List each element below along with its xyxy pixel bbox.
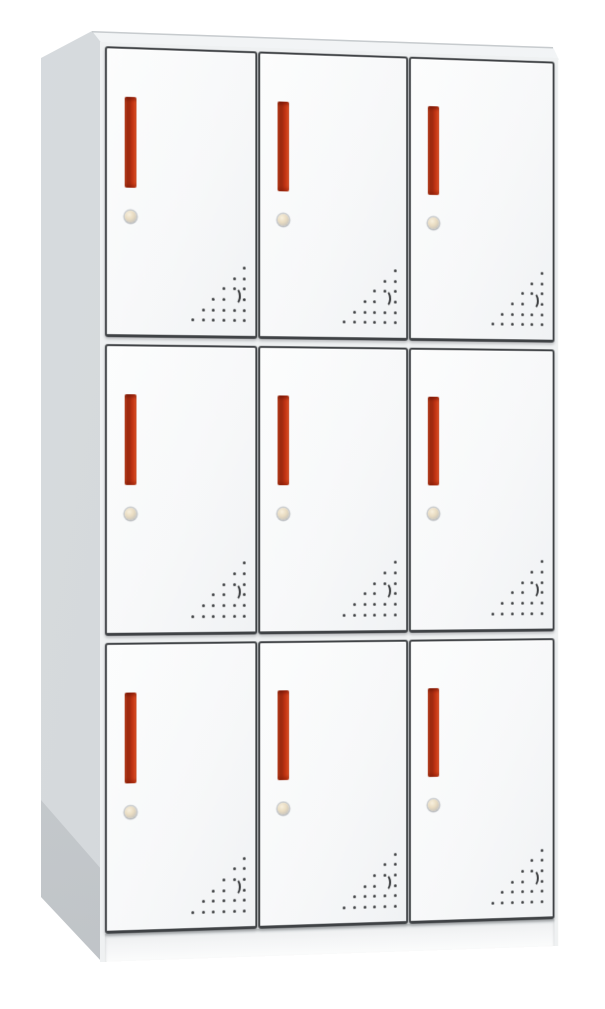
vent-empty-cell <box>488 857 498 868</box>
vent-hole <box>527 278 537 288</box>
vent-crescent-hole <box>229 885 239 896</box>
vent-hole <box>527 897 537 908</box>
vent-empty-cell <box>229 853 239 864</box>
locker-product-photo <box>0 0 605 1009</box>
vent-empty-cell <box>517 268 527 278</box>
vent-empty-cell <box>198 886 208 897</box>
vent-empty-cell <box>360 850 370 861</box>
vent-holes-icon <box>339 849 400 913</box>
keyhole-lock-icon[interactable] <box>278 802 290 814</box>
vent-hole <box>240 864 250 875</box>
vent-empty-cell <box>508 557 518 567</box>
vent-empty-cell <box>350 578 360 589</box>
vent-hole <box>240 590 250 601</box>
vent-empty-cell <box>508 268 518 279</box>
vent-empty-cell <box>188 569 198 580</box>
vent-hole <box>209 886 219 897</box>
vent-empty-cell <box>360 286 370 297</box>
locker-door[interactable] <box>409 348 555 633</box>
vent-empty-cell <box>219 558 229 569</box>
vent-hole <box>188 611 198 622</box>
vent-hole <box>527 320 537 330</box>
vent-empty-cell <box>350 871 360 882</box>
vent-hole <box>209 315 219 326</box>
vent-crescent-hole <box>229 590 239 601</box>
vent-hole <box>537 268 547 278</box>
vent-empty-cell <box>219 854 229 865</box>
vent-hole <box>370 286 380 297</box>
vent-hole <box>537 608 547 618</box>
vent-hole <box>517 299 527 309</box>
vent-hole <box>229 305 239 316</box>
vent-empty-cell <box>339 850 349 861</box>
vent-empty-cell <box>488 598 498 608</box>
vent-empty-cell <box>339 579 349 590</box>
vent-empty-cell <box>488 309 498 320</box>
vent-empty-cell <box>198 262 208 273</box>
locker-door[interactable] <box>259 639 408 928</box>
vent-hole <box>360 881 370 892</box>
vent-hole <box>240 874 250 885</box>
vent-hole <box>508 319 518 329</box>
vent-empty-cell <box>339 882 349 893</box>
vent-hole <box>370 599 380 610</box>
vent-empty-cell <box>339 589 349 600</box>
vent-empty-cell <box>339 307 349 318</box>
vent-empty-cell <box>339 275 349 286</box>
vent-empty-cell <box>209 875 219 886</box>
vent-hole <box>380 610 390 621</box>
locker-door[interactable] <box>105 641 258 934</box>
vent-empty-cell <box>488 288 498 299</box>
vent-hole <box>370 307 380 318</box>
vent-empty-cell <box>209 273 219 284</box>
vent-empty-cell <box>188 876 198 887</box>
keyhole-lock-icon[interactable] <box>125 806 137 818</box>
locker-door[interactable] <box>409 57 555 343</box>
vent-hole <box>370 318 380 329</box>
vent-empty-cell <box>488 557 498 567</box>
vent-hole <box>537 320 547 330</box>
vent-crescent-hole <box>229 294 239 305</box>
vent-empty-cell <box>188 579 198 590</box>
vent-empty-cell <box>339 861 349 872</box>
door-handle-icon[interactable] <box>278 690 290 780</box>
vent-hole <box>498 309 508 319</box>
vent-hole <box>350 610 360 621</box>
vent-empty-cell <box>350 265 360 276</box>
vent-hole <box>229 906 239 917</box>
door-handle-icon[interactable] <box>428 688 439 777</box>
vent-empty-cell <box>498 846 508 857</box>
vent-empty-cell <box>209 569 219 580</box>
vent-hole <box>498 319 508 329</box>
vent-hole <box>350 892 360 903</box>
vent-hole <box>188 907 198 918</box>
vent-empty-cell <box>498 877 508 888</box>
vent-holes-icon <box>188 853 250 918</box>
vent-empty-cell <box>209 864 219 875</box>
vent-hole <box>537 855 547 866</box>
vent-empty-cell <box>360 578 370 589</box>
vent-hole <box>517 887 527 898</box>
vent-empty-cell <box>339 599 349 610</box>
vent-empty-cell <box>488 267 498 278</box>
vent-empty-cell <box>360 568 370 579</box>
vent-empty-cell <box>488 578 498 588</box>
vent-hole <box>488 609 498 619</box>
vent-empty-cell <box>339 558 349 569</box>
vent-hole <box>219 906 229 917</box>
vent-hole <box>370 589 380 600</box>
vent-empty-cell <box>527 557 537 567</box>
vent-empty-cell <box>188 854 198 865</box>
vent-hole <box>390 578 400 588</box>
vent-hole <box>517 309 527 319</box>
vent-hole <box>508 309 518 319</box>
door-handle-icon[interactable] <box>428 397 439 486</box>
vent-empty-cell <box>198 569 208 580</box>
vent-hole <box>390 891 400 902</box>
vent-empty-cell <box>219 864 229 875</box>
vent-empty-cell <box>508 278 518 289</box>
vent-hole <box>370 578 380 589</box>
vent-holes-icon <box>488 557 547 619</box>
vent-hole <box>219 315 229 326</box>
vent-empty-cell <box>350 568 360 579</box>
vent-hole <box>498 609 508 619</box>
vent-hole <box>380 276 390 287</box>
vent-empty-cell <box>198 579 208 590</box>
keyhole-lock-icon[interactable] <box>428 217 439 229</box>
vent-hole <box>390 880 400 891</box>
door-handle-icon[interactable] <box>125 97 137 188</box>
vent-empty-cell <box>488 846 498 857</box>
door-handle-icon[interactable] <box>125 395 137 486</box>
vent-hole <box>209 294 219 305</box>
vent-hole <box>209 907 219 918</box>
door-handle-icon[interactable] <box>278 396 290 486</box>
vent-hole <box>380 568 390 578</box>
vent-empty-cell <box>350 275 360 286</box>
vent-empty-cell <box>188 304 198 315</box>
vent-empty-cell <box>380 557 390 567</box>
vent-hole <box>380 860 390 871</box>
vent-hole <box>240 611 250 622</box>
vent-hole <box>229 569 239 580</box>
locker-door[interactable] <box>105 46 258 339</box>
vent-hole <box>219 590 229 601</box>
vent-empty-cell <box>508 567 518 577</box>
vent-hole <box>360 317 370 328</box>
vent-hole <box>219 896 229 907</box>
vent-hole <box>188 315 198 326</box>
vent-empty-cell <box>339 568 349 579</box>
vent-hole <box>390 307 400 318</box>
vent-empty-cell <box>360 276 370 287</box>
vent-hole <box>219 600 229 611</box>
vent-hole <box>240 295 250 306</box>
vent-empty-cell <box>498 856 508 867</box>
vent-hole <box>209 611 219 622</box>
vent-hole <box>360 589 370 600</box>
keyhole-lock-icon[interactable] <box>125 211 137 223</box>
vent-empty-cell <box>508 288 518 299</box>
vent-hole <box>360 296 370 307</box>
vent-empty-cell <box>198 294 208 305</box>
vent-hole <box>240 316 250 327</box>
vent-hole <box>198 315 208 326</box>
vent-empty-cell <box>350 558 360 568</box>
vent-hole <box>198 611 208 622</box>
vent-hole <box>219 875 229 886</box>
vent-hole <box>537 845 547 856</box>
vent-empty-cell <box>188 558 198 569</box>
vent-empty-cell <box>498 268 508 279</box>
vent-empty-cell <box>498 567 508 577</box>
vent-empty-cell <box>360 860 370 871</box>
vent-empty-cell <box>188 601 198 612</box>
vent-hole <box>537 289 547 299</box>
vent-empty-cell <box>219 273 229 284</box>
vent-hole <box>219 284 229 295</box>
vent-empty-cell <box>488 888 498 899</box>
vent-empty-cell <box>350 860 360 871</box>
vent-hole <box>390 589 400 599</box>
keyhole-lock-icon[interactable] <box>428 799 439 811</box>
vent-empty-cell <box>498 299 508 309</box>
vent-empty-cell <box>229 263 239 274</box>
vent-empty-cell <box>209 558 219 569</box>
vent-empty-cell <box>339 286 349 297</box>
vent-empty-cell <box>188 262 198 273</box>
locker-door[interactable] <box>259 51 408 341</box>
vent-empty-cell <box>209 854 219 865</box>
vent-empty-cell <box>188 294 198 305</box>
vent-hole <box>240 305 250 316</box>
vent-hole <box>219 885 229 896</box>
vent-holes-icon <box>188 262 250 326</box>
vent-hole <box>198 304 208 315</box>
vent-hole <box>527 567 537 577</box>
vent-hole <box>537 279 547 289</box>
vent-hole <box>240 906 250 917</box>
vent-empty-cell <box>209 262 219 273</box>
locker-door[interactable] <box>259 346 408 634</box>
locker-door[interactable] <box>105 344 258 635</box>
door-handle-icon[interactable] <box>125 692 137 783</box>
vent-empty-cell <box>188 590 198 601</box>
vent-hole <box>508 897 518 908</box>
vent-hole <box>219 579 229 590</box>
vent-hole <box>537 557 547 567</box>
vent-empty-cell <box>198 590 208 601</box>
vent-hole <box>527 598 537 608</box>
vent-empty-cell <box>527 268 537 278</box>
vent-hole <box>390 297 400 308</box>
vent-hole <box>537 886 547 897</box>
vent-hole <box>229 864 239 875</box>
vent-hole <box>240 263 250 274</box>
vent-hole <box>360 610 370 621</box>
vent-hole <box>488 319 498 329</box>
vent-hole <box>380 318 390 329</box>
vent-empty-cell <box>498 557 508 567</box>
vent-hole <box>380 307 390 318</box>
vent-hole <box>370 610 380 621</box>
vent-empty-cell <box>498 578 508 588</box>
vent-hole <box>517 876 527 887</box>
vent-empty-cell <box>488 567 498 577</box>
locker-door[interactable] <box>409 638 555 924</box>
vent-holes-icon <box>339 557 400 620</box>
vent-hole <box>390 276 400 287</box>
vent-hole <box>229 895 239 906</box>
vent-empty-cell <box>209 579 219 590</box>
vent-hole <box>390 609 400 620</box>
vent-hole <box>517 289 527 299</box>
vent-empty-cell <box>360 265 370 276</box>
vent-empty-cell <box>498 867 508 878</box>
vent-crescent-hole <box>380 589 390 599</box>
keyhole-lock-icon[interactable] <box>125 508 137 520</box>
keyhole-lock-icon[interactable] <box>278 214 290 226</box>
vent-empty-cell <box>488 877 498 888</box>
vent-empty-cell <box>219 569 229 580</box>
vent-hole <box>350 902 360 913</box>
vent-hole <box>360 307 370 318</box>
vent-empty-cell <box>527 845 537 856</box>
keyhole-lock-icon[interactable] <box>428 508 439 520</box>
vent-hole <box>380 891 390 902</box>
vent-empty-cell <box>198 283 208 294</box>
vent-empty-cell <box>188 283 198 294</box>
vent-hole <box>360 599 370 610</box>
vent-empty-cell <box>198 875 208 886</box>
vent-empty-cell <box>488 298 498 308</box>
vent-empty-cell <box>360 557 370 567</box>
vent-hole <box>537 897 547 908</box>
vent-hole <box>498 887 508 898</box>
vent-hole <box>370 891 380 902</box>
vent-hole <box>240 853 250 864</box>
vent-hole <box>229 611 239 622</box>
vent-hole <box>517 608 527 618</box>
vent-hole <box>508 877 518 888</box>
vent-hole <box>390 286 400 297</box>
vent-hole <box>380 901 390 912</box>
vent-hole <box>339 610 349 621</box>
vent-hole <box>219 305 229 316</box>
vent-empty-cell <box>198 558 208 569</box>
vent-hole <box>339 903 349 914</box>
vent-empty-cell <box>498 278 508 289</box>
vent-empty-cell <box>339 296 349 307</box>
vent-holes-icon <box>188 558 250 622</box>
vent-hole <box>380 599 390 610</box>
vent-holes-icon <box>488 267 547 330</box>
vent-hole <box>229 273 239 284</box>
vent-hole <box>527 887 537 898</box>
vent-empty-cell <box>360 871 370 882</box>
vent-empty-cell <box>188 273 198 284</box>
vent-hole <box>508 609 518 619</box>
vent-empty-cell <box>219 263 229 274</box>
vent-hole <box>209 896 219 907</box>
vent-crescent-hole <box>380 297 390 308</box>
vent-crescent-hole <box>527 588 537 598</box>
vent-hole <box>370 881 380 892</box>
vent-hole <box>517 866 527 877</box>
vent-hole <box>360 902 370 913</box>
door-handle-icon[interactable] <box>278 101 290 191</box>
vent-hole <box>390 849 400 860</box>
vent-hole <box>360 892 370 903</box>
vent-hole <box>390 901 400 912</box>
vent-empty-cell <box>370 849 380 860</box>
vent-hole <box>527 608 537 618</box>
vent-empty-cell <box>508 578 518 588</box>
vent-empty-cell <box>517 278 527 288</box>
vent-crescent-hole <box>380 881 390 892</box>
vent-empty-cell <box>370 860 380 871</box>
vent-hole <box>370 870 380 881</box>
vent-empty-cell <box>350 286 360 297</box>
vent-empty-cell <box>339 871 349 882</box>
vent-holes-icon <box>488 845 547 909</box>
vent-hole <box>350 599 360 610</box>
vent-hole <box>508 887 518 898</box>
vent-hole <box>390 557 400 567</box>
vent-empty-cell <box>350 850 360 861</box>
vent-empty-cell <box>370 276 380 287</box>
vent-hole <box>537 577 547 587</box>
vent-hole <box>209 305 219 316</box>
vent-empty-cell <box>517 856 527 867</box>
vent-empty-cell <box>508 846 518 857</box>
vent-hole <box>390 870 400 881</box>
vent-hole <box>229 315 239 326</box>
vent-hole <box>498 898 508 909</box>
vent-hole <box>240 569 250 580</box>
vent-hole <box>537 866 547 877</box>
vent-hole <box>339 317 349 328</box>
vent-hole <box>240 600 250 611</box>
vent-hole <box>498 598 508 608</box>
vent-hole <box>537 310 547 320</box>
vent-hole <box>517 897 527 908</box>
keyhole-lock-icon[interactable] <box>278 508 290 520</box>
vent-empty-cell <box>198 865 208 876</box>
vent-empty-cell <box>350 296 360 307</box>
vent-empty-cell <box>488 278 498 289</box>
vent-hole <box>350 317 360 328</box>
vent-hole <box>488 898 498 909</box>
vent-empty-cell <box>339 265 349 276</box>
door-handle-icon[interactable] <box>428 106 439 195</box>
vent-empty-cell <box>488 588 498 598</box>
vent-hole <box>537 299 547 309</box>
vent-hole <box>517 320 527 330</box>
vent-empty-cell <box>517 846 527 857</box>
vent-hole <box>537 598 547 608</box>
vent-hole <box>350 307 360 318</box>
vent-hole <box>390 599 400 610</box>
vent-hole <box>240 284 250 295</box>
vent-empty-cell <box>498 288 508 299</box>
vent-hole <box>508 299 518 309</box>
vent-hole <box>209 590 219 601</box>
